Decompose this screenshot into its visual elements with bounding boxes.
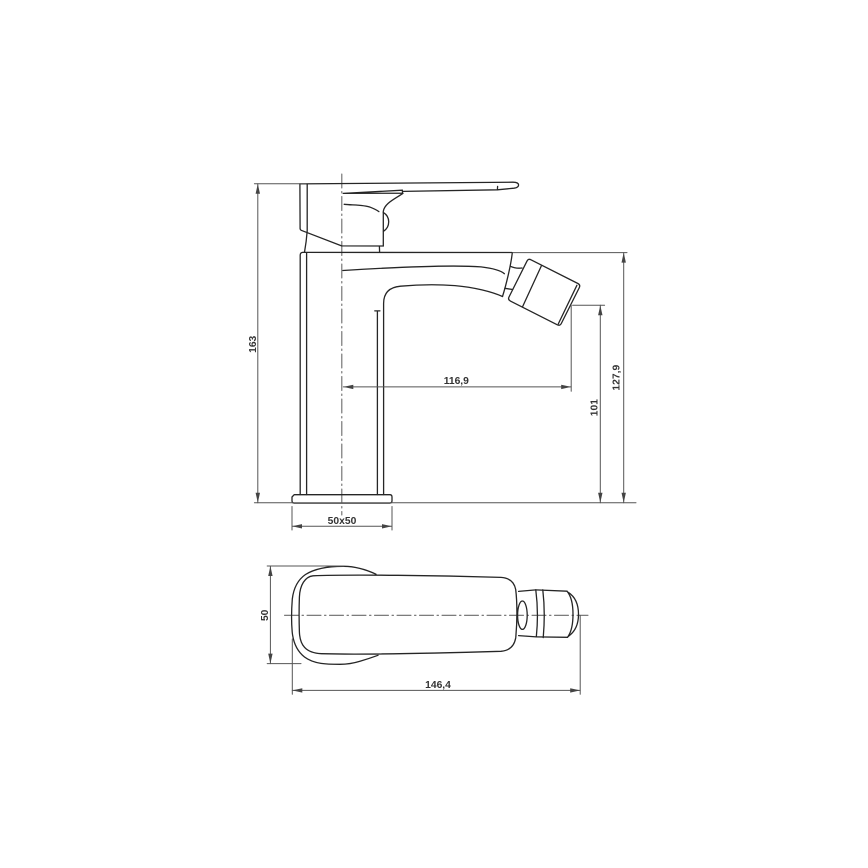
svg-text:50x50: 50x50	[328, 516, 357, 527]
svg-text:146,4: 146,4	[425, 680, 451, 691]
svg-text:163: 163	[248, 335, 259, 352]
svg-text:50: 50	[260, 609, 271, 621]
svg-text:127,9: 127,9	[611, 365, 622, 391]
svg-text:116,9: 116,9	[444, 376, 469, 387]
svg-text:101: 101	[590, 399, 601, 416]
